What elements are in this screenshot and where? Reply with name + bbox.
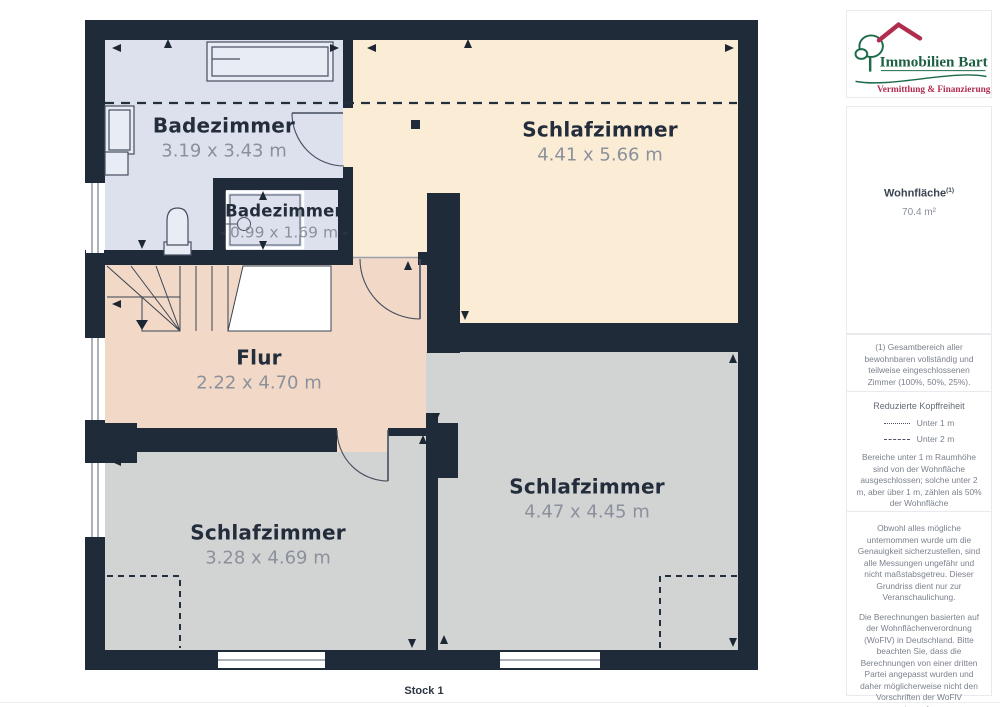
legend-under-2m: Unter 2 m <box>856 434 982 444</box>
footnote-card: (1) Gesamtbereich aller bewohnbaren voll… <box>846 334 992 392</box>
bedroom-bottomright-floor <box>438 352 738 650</box>
headroom-title: Reduzierte Kopffreiheit <box>856 401 982 411</box>
headroom-card: Reduzierte Kopffreiheit Unter 1 m Unter … <box>846 391 992 512</box>
logo-swoosh <box>856 75 987 83</box>
logo-tagline: Vermittlung & Finanzierung <box>877 85 991 95</box>
bedroom-bottomleft-floor <box>105 430 426 650</box>
info-sidebar: Immobilien Bart Vermittlung & Finanzieru… <box>846 0 994 707</box>
disclaimer-accuracy: Obwohl alles mögliche unternommen wurde … <box>857 523 981 604</box>
legend-label: Unter 1 m <box>917 418 955 428</box>
small-bathroom <box>226 190 338 250</box>
logo-roof-icon <box>879 25 920 41</box>
living-area-card: Wohnfläche(1) 70.4 m² <box>846 106 992 334</box>
immobilien-bart-logo: Immobilien Bart Vermittlung & Finanzieru… <box>847 11 993 97</box>
chimney-block <box>411 120 420 129</box>
floorplan-page: Badezimmer 3.19 x 3.43 m Badezimmer ◄ 0.… <box>0 0 1000 707</box>
footnote-text: (1) Gesamtbereich aller bewohnbaren voll… <box>857 342 981 388</box>
window-left-3 <box>86 463 104 537</box>
footnote-marker: (1) <box>946 187 954 194</box>
headroom-note: Bereiche unter 1 m Raumhöhe sind von der… <box>856 452 982 510</box>
window-bottom-1 <box>218 652 325 668</box>
dotted-line-sample <box>884 423 910 424</box>
legend-label: Unter 2 m <box>917 434 955 444</box>
window-left-2 <box>86 338 104 420</box>
dashed-line-sample <box>884 439 910 440</box>
disclaimer-woflv: Die Berechnungen basierten auf der Wohnf… <box>857 612 981 707</box>
logo-name: Immobilien Bart <box>880 55 988 71</box>
window-left-1 <box>86 183 104 253</box>
stairwell-void <box>228 266 331 331</box>
bathtub <box>207 42 333 81</box>
brand-logo-card: Immobilien Bart Vermittlung & Finanzieru… <box>846 10 992 98</box>
floor-caption: Stock 1 <box>404 685 443 697</box>
living-area-title: Wohnfläche(1) <box>847 187 991 200</box>
living-area-value: 70.4 m² <box>847 207 991 218</box>
toilet <box>164 208 191 255</box>
page-bottom-rule <box>0 702 1000 703</box>
doorway-passage-floor <box>426 352 438 413</box>
legend-under-1m: Unter 1 m <box>856 418 982 428</box>
window-bottom-2 <box>500 652 600 668</box>
disclaimer-card: Obwohl alles mögliche unternommen wurde … <box>846 511 992 696</box>
